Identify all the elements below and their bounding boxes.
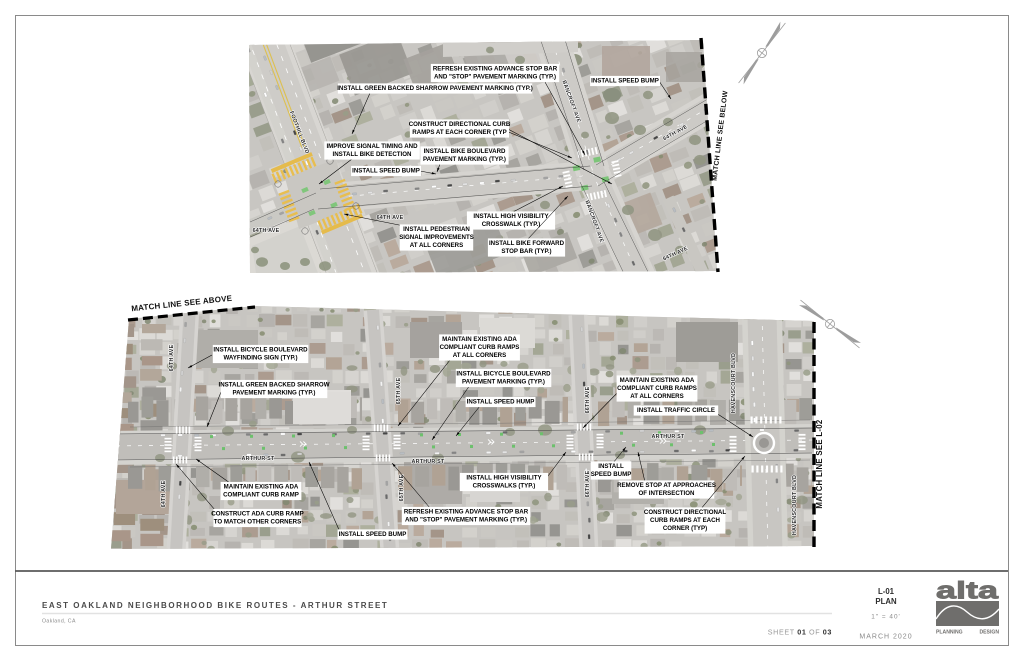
svg-text:alta: alta	[936, 578, 999, 605]
svg-text:AT ALL CORNERS: AT ALL CORNERS	[453, 352, 506, 359]
svg-text:INSTALL BICYCLE BOULEVARD: INSTALL BICYCLE BOULEVARD	[456, 371, 551, 378]
svg-text:MATCH LINE SEE L-02: MATCH LINE SEE L-02	[815, 419, 824, 509]
svg-text:INSTALL PEDESTRIAN: INSTALL PEDESTRIAN	[403, 226, 470, 233]
svg-text:COMPLIANT CURB RAMPS: COMPLIANT CURB RAMPS	[440, 344, 520, 351]
svg-text:L-01: L-01	[878, 587, 895, 596]
svg-text:AND "STOP" PAVEMENT MARKING (T: AND "STOP" PAVEMENT MARKING (TYP.)	[434, 74, 556, 81]
svg-text:INSTALL SPEED BUMP: INSTALL SPEED BUMP	[339, 531, 407, 538]
svg-text:Oakland, CA: Oakland, CA	[42, 619, 76, 625]
svg-text:CORNER (TYP): CORNER (TYP)	[663, 525, 707, 532]
svg-text:DESIGN: DESIGN	[979, 630, 999, 636]
svg-text:ARTHUR ST: ARTHUR ST	[242, 456, 275, 462]
svg-text:64TH AVE: 64TH AVE	[377, 215, 404, 221]
svg-text:IMPROVE SIGNAL TIMING AND: IMPROVE SIGNAL TIMING AND	[326, 143, 418, 150]
svg-text:CROSSWALKS (TYP.): CROSSWALKS (TYP.)	[473, 483, 536, 490]
svg-text:64TH AVE: 64TH AVE	[169, 344, 175, 371]
svg-text:INSTALL BIKE BOULEVARD: INSTALL BIKE BOULEVARD	[424, 148, 506, 155]
svg-text:PAVEMENT MARKING (TYP.): PAVEMENT MARKING (TYP.)	[462, 379, 545, 386]
svg-text:HAVENSCOURT BLVD: HAVENSCOURT BLVD	[792, 475, 798, 535]
svg-text:SPEED BUMP: SPEED BUMP	[591, 471, 632, 478]
svg-text:REFRESH EXISTING ADVANCE STOP: REFRESH EXISTING ADVANCE STOP BAR	[433, 66, 558, 73]
svg-text:SIGNAL IMPROVEMENTS: SIGNAL IMPROVEMENTS	[399, 234, 474, 241]
svg-text:65TH AVE: 65TH AVE	[396, 377, 402, 404]
svg-text:AND "STOP" PAVEMENT MARKING (T: AND "STOP" PAVEMENT MARKING (TYP.)	[405, 517, 527, 524]
svg-text:INSTALL SPEED HUMP: INSTALL SPEED HUMP	[467, 399, 535, 406]
svg-text:65TH AVE: 65TH AVE	[399, 474, 405, 501]
svg-text:PAVEMENT MARKING (TYP.): PAVEMENT MARKING (TYP.)	[423, 156, 506, 163]
svg-text:INSTALL GREEN BACKED SHARROW: INSTALL GREEN BACKED SHARROW	[219, 382, 330, 389]
svg-text:SHEET 01 OF 03: SHEET 01 OF 03	[768, 628, 832, 637]
svg-text:PAVEMENT MARKING (TYP.): PAVEMENT MARKING (TYP.)	[233, 390, 316, 397]
svg-text:EAST OAKLAND NEIGHBORHOOD BIKE: EAST OAKLAND NEIGHBORHOOD BIKE ROUTES - …	[42, 601, 388, 610]
svg-text:CONSTRUCT DIRECTIONAL: CONSTRUCT DIRECTIONAL	[644, 509, 726, 516]
svg-text:INSTALL BIKE FORWARD: INSTALL BIKE FORWARD	[489, 240, 565, 247]
svg-text:PLANNING: PLANNING	[936, 630, 963, 636]
svg-text:MARCH 2020: MARCH 2020	[859, 634, 912, 641]
svg-text:CROSSWALK (TYP.): CROSSWALK (TYP.)	[482, 221, 541, 228]
svg-text:STOP BAR (TYP.): STOP BAR (TYP.)	[501, 248, 551, 255]
svg-text:66TH AVE: 66TH AVE	[585, 386, 591, 413]
svg-text:REMOVE STOP AT APPROACHES: REMOVE STOP AT APPROACHES	[617, 482, 716, 489]
svg-text:CURB RAMPS AT EACH: CURB RAMPS AT EACH	[650, 517, 720, 524]
svg-text:RAMPS AT EACH CORNER (TYP: RAMPS AT EACH CORNER (TYP	[412, 129, 507, 136]
svg-text:TO MATCH OTHER CORNERS: TO MATCH OTHER CORNERS	[214, 519, 301, 526]
svg-text:AT ALL CORNERS: AT ALL CORNERS	[410, 242, 463, 249]
svg-text:1" = 40': 1" = 40'	[871, 614, 900, 621]
svg-text:WAYFINDING SIGN (TYP.): WAYFINDING SIGN (TYP.)	[223, 355, 297, 362]
svg-text:INSTALL HIGH VISIBILITY: INSTALL HIGH VISIBILITY	[473, 213, 548, 220]
svg-text:INSTALL GREEN BACKED SHARROW P: INSTALL GREEN BACKED SHARROW PAVEMENT MA…	[337, 85, 533, 92]
svg-text:64TH AVE: 64TH AVE	[161, 480, 167, 507]
svg-text:ARTHUR ST: ARTHUR ST	[412, 459, 445, 465]
svg-text:INSTALL HIGH VISIBILITY: INSTALL HIGH VISIBILITY	[466, 475, 541, 482]
svg-text:CONSTRUCT ADA CURB RAMP: CONSTRUCT ADA CURB RAMP	[211, 511, 303, 518]
svg-text:PLAN: PLAN	[875, 597, 897, 606]
svg-text:COMPLIANT CURB RAMPS: COMPLIANT CURB RAMPS	[617, 385, 697, 392]
svg-text:OF INTERSECTION: OF INTERSECTION	[639, 490, 696, 497]
svg-text:MAINTAIN EXISTING ADA: MAINTAIN EXISTING ADA	[224, 484, 299, 491]
svg-text:MAINTAIN EXISTING ADA: MAINTAIN EXISTING ADA	[442, 336, 517, 343]
svg-text:INSTALL: INSTALL	[598, 463, 624, 470]
svg-text:REFRESH EXISTING ADVANCE STOP: REFRESH EXISTING ADVANCE STOP BAR	[404, 509, 529, 516]
svg-text:INSTALL SPEED BUMP: INSTALL SPEED BUMP	[352, 168, 420, 175]
svg-text:COMPLIANT CURB RAMP: COMPLIANT CURB RAMP	[223, 492, 299, 499]
svg-text:INSTALL BIKE DETECTION: INSTALL BIKE DETECTION	[333, 151, 412, 158]
svg-text:INSTALL BICYCLE BOULEVARD: INSTALL BICYCLE BOULEVARD	[213, 347, 308, 354]
svg-text:AT ALL CORNERS: AT ALL CORNERS	[630, 393, 683, 400]
svg-text:CONSTRUCT DIRECTIONAL CURB: CONSTRUCT DIRECTIONAL CURB	[409, 121, 511, 128]
svg-text:MAINTAIN EXISTING ADA: MAINTAIN EXISTING ADA	[620, 377, 695, 384]
svg-text:64TH AVE: 64TH AVE	[253, 228, 280, 234]
svg-text:HAVENSCOURT BLVD: HAVENSCOURT BLVD	[731, 353, 737, 413]
svg-text:INSTALL SPEED BUMP: INSTALL SPEED BUMP	[591, 78, 659, 85]
svg-text:ARTHUR ST: ARTHUR ST	[652, 434, 685, 440]
svg-text:INSTALL TRAFFIC CIRCLE: INSTALL TRAFFIC CIRCLE	[637, 407, 715, 414]
